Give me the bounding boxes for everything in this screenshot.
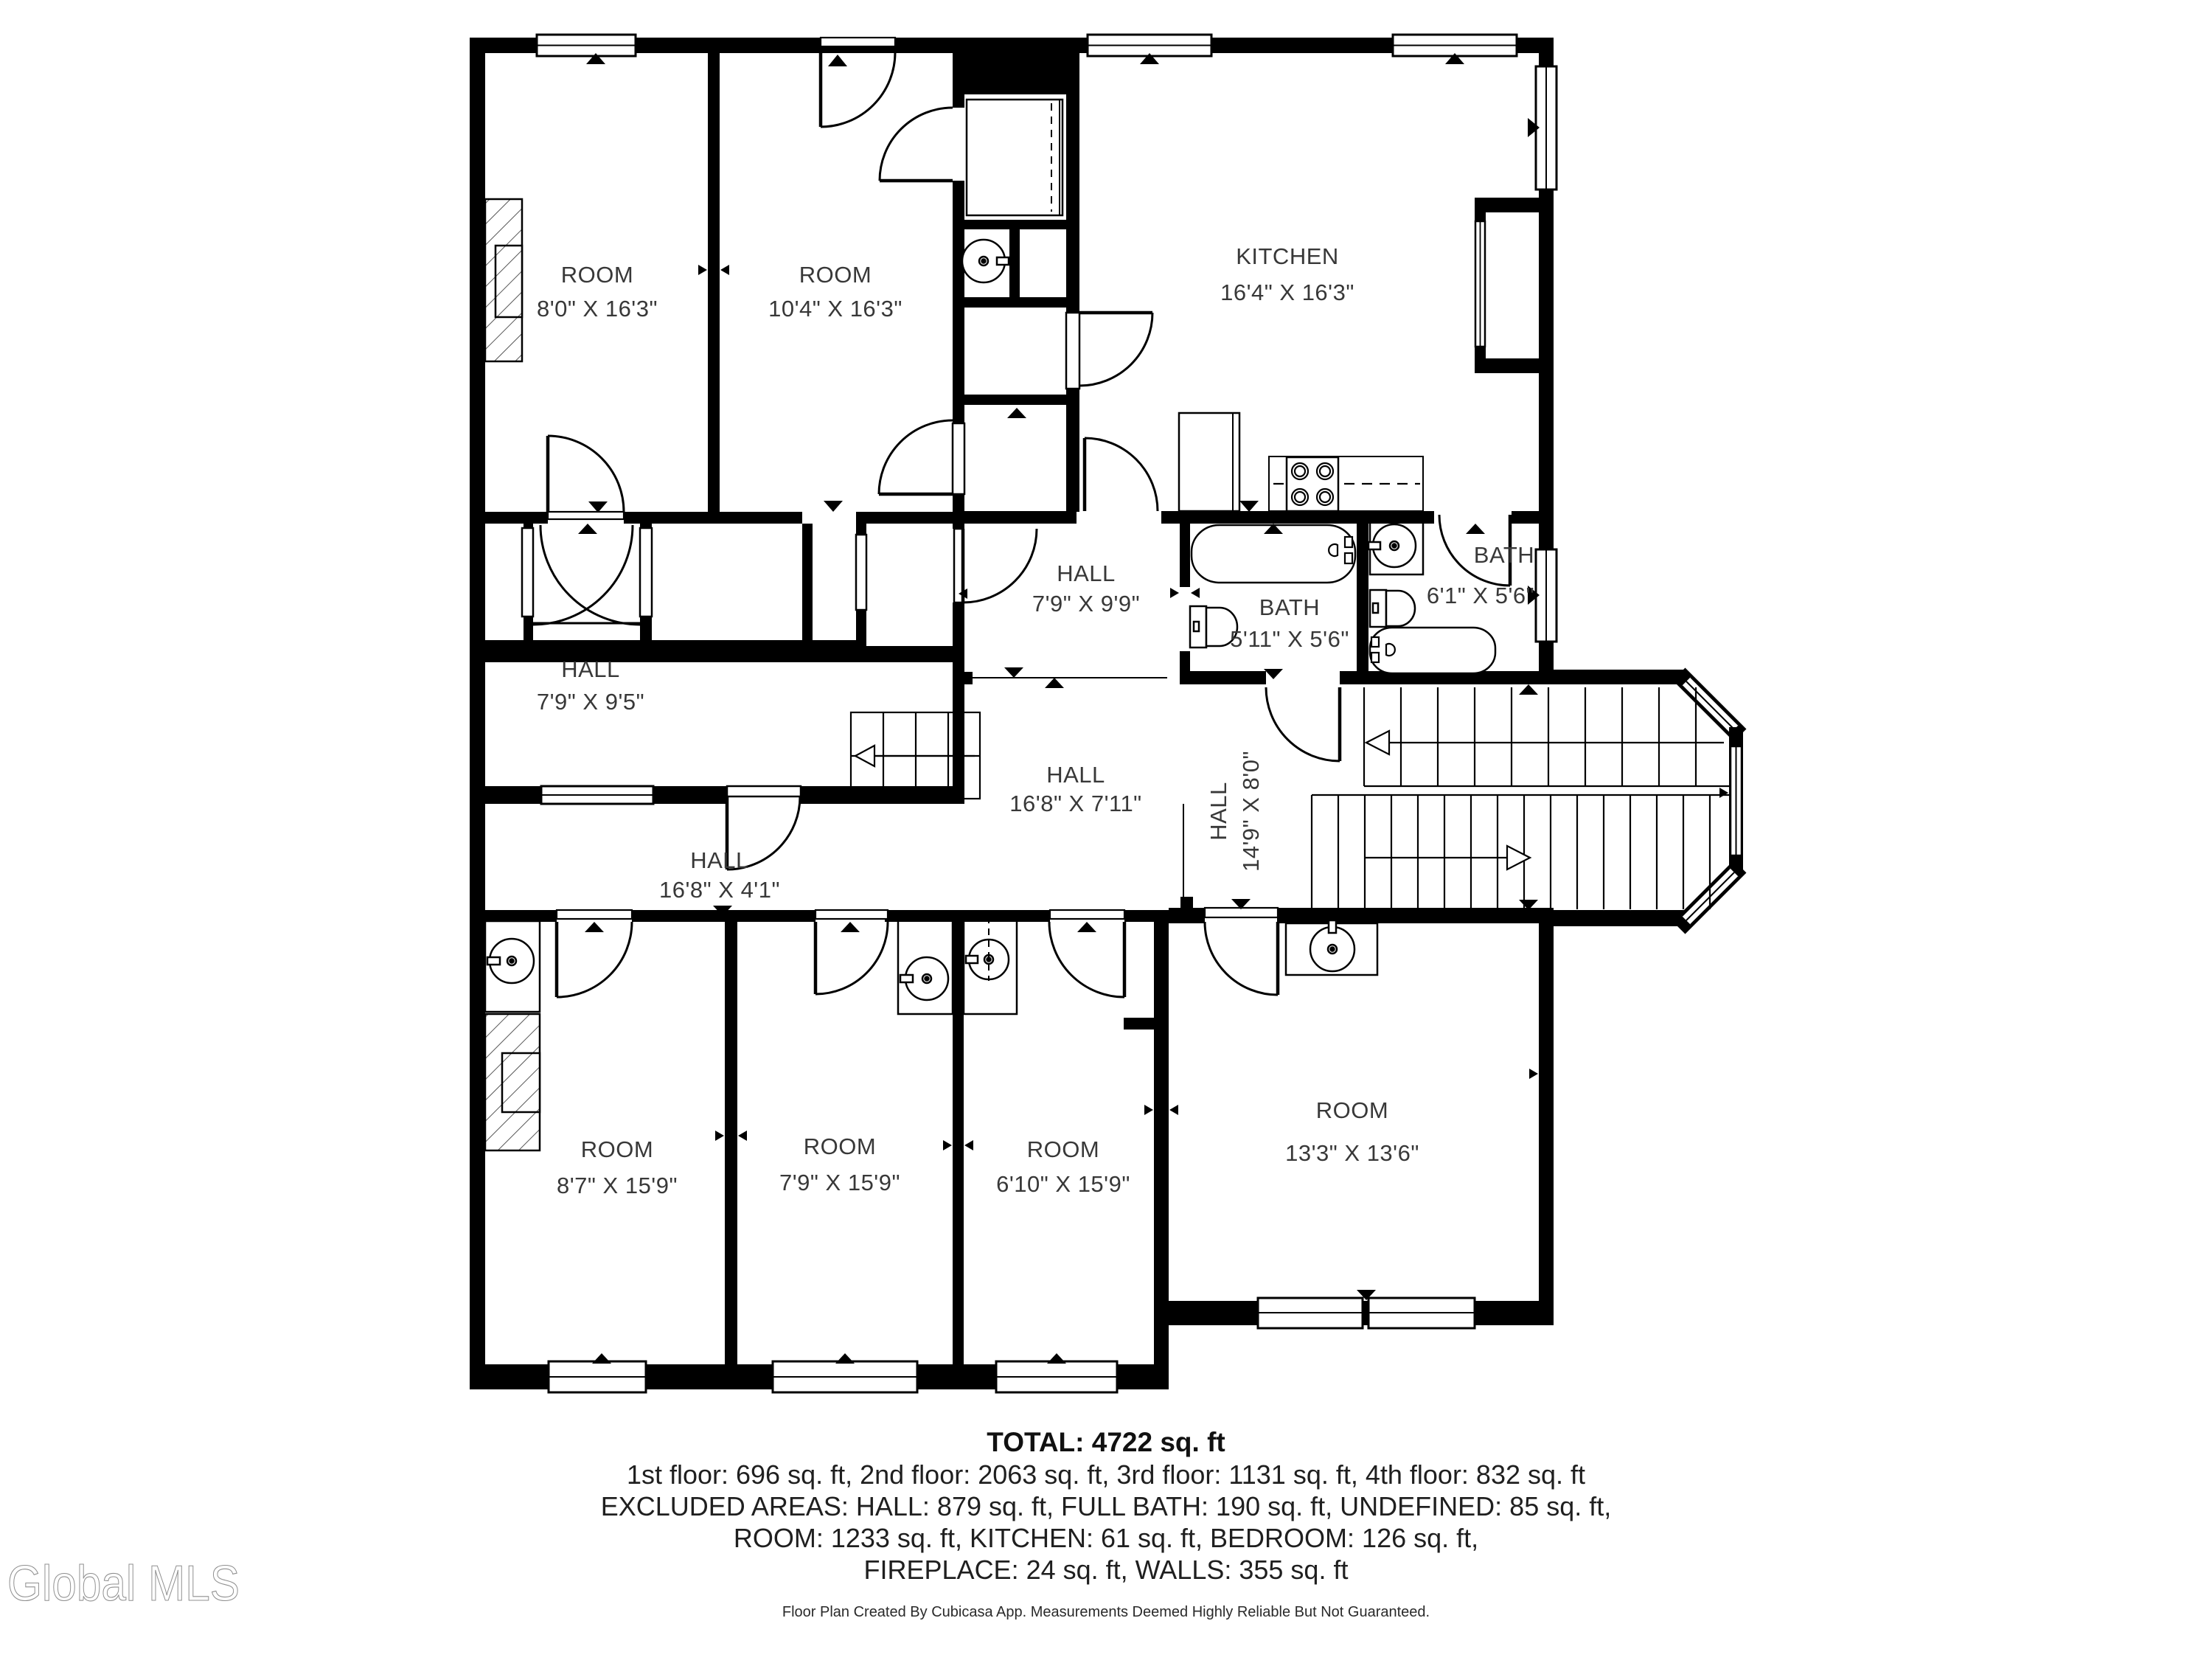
svg-text:10'4" X 16'3": 10'4" X 16'3" bbox=[768, 296, 902, 322]
svg-text:14'9" X 8'0": 14'9" X 8'0" bbox=[1238, 751, 1264, 872]
svg-text:16'8" X 7'11": 16'8" X 7'11" bbox=[1009, 791, 1141, 816]
svg-text:16'4" X 16'3": 16'4" X 16'3" bbox=[1220, 280, 1354, 305]
svg-text:Global MLS: Global MLS bbox=[7, 1555, 240, 1611]
svg-text:FIREPLACE: 24 sq. ft, WALLS: 3: FIREPLACE: 24 sq. ft, WALLS: 355 sq. ft bbox=[864, 1555, 1349, 1585]
svg-text:TOTAL: 4722 sq. ft: TOTAL: 4722 sq. ft bbox=[987, 1427, 1225, 1457]
svg-text:KITCHEN: KITCHEN bbox=[1236, 243, 1339, 269]
svg-text:6'1" X 5'6": 6'1" X 5'6" bbox=[1427, 583, 1534, 608]
svg-text:ROOM: ROOM bbox=[804, 1133, 876, 1159]
svg-text:7'9" X 9'5": 7'9" X 9'5" bbox=[537, 689, 644, 715]
svg-text:13'3" X 13'6": 13'3" X 13'6" bbox=[1285, 1140, 1419, 1166]
svg-text:ROOM: ROOM bbox=[581, 1136, 653, 1162]
svg-text:8'0" X 16'3": 8'0" X 16'3" bbox=[537, 296, 658, 322]
svg-text:Floor Plan Created By Cubicasa: Floor Plan Created By Cubicasa App. Meas… bbox=[782, 1604, 1430, 1620]
svg-text:7'9" X 9'9": 7'9" X 9'9" bbox=[1032, 591, 1140, 617]
svg-text:BATH: BATH bbox=[1474, 542, 1534, 568]
svg-text:ROOM: ROOM bbox=[1316, 1097, 1388, 1123]
svg-text:EXCLUDED AREAS: HALL: 879 sq.: EXCLUDED AREAS: HALL: 879 sq. ft, FULL B… bbox=[601, 1491, 1612, 1521]
svg-text:HALL: HALL bbox=[1046, 762, 1105, 788]
svg-text:8'7" X 15'9": 8'7" X 15'9" bbox=[557, 1173, 678, 1198]
svg-text:HALL: HALL bbox=[561, 656, 620, 682]
svg-text:7'9" X 15'9": 7'9" X 15'9" bbox=[779, 1170, 900, 1195]
svg-text:ROOM: ROOM bbox=[799, 262, 872, 288]
svg-text:HALL: HALL bbox=[1206, 782, 1231, 841]
svg-text:5'11" X 5'6": 5'11" X 5'6" bbox=[1230, 626, 1349, 652]
svg-text:16'8" X 4'1": 16'8" X 4'1" bbox=[659, 877, 780, 903]
svg-text:HALL: HALL bbox=[1057, 560, 1116, 586]
svg-text:1st floor: 696 sq. ft, 2nd flo: 1st floor: 696 sq. ft, 2nd floor: 2063 s… bbox=[627, 1459, 1585, 1490]
svg-text:ROOM: 1233 sq. ft, KITCHEN: 61: ROOM: 1233 sq. ft, KITCHEN: 61 sq. ft, B… bbox=[734, 1523, 1478, 1553]
svg-text:6'10" X 15'9": 6'10" X 15'9" bbox=[996, 1171, 1130, 1197]
svg-text:ROOM: ROOM bbox=[1027, 1136, 1099, 1162]
svg-text:BATH: BATH bbox=[1259, 594, 1320, 620]
svg-text:HALL: HALL bbox=[690, 847, 749, 873]
svg-text:ROOM: ROOM bbox=[561, 262, 633, 288]
